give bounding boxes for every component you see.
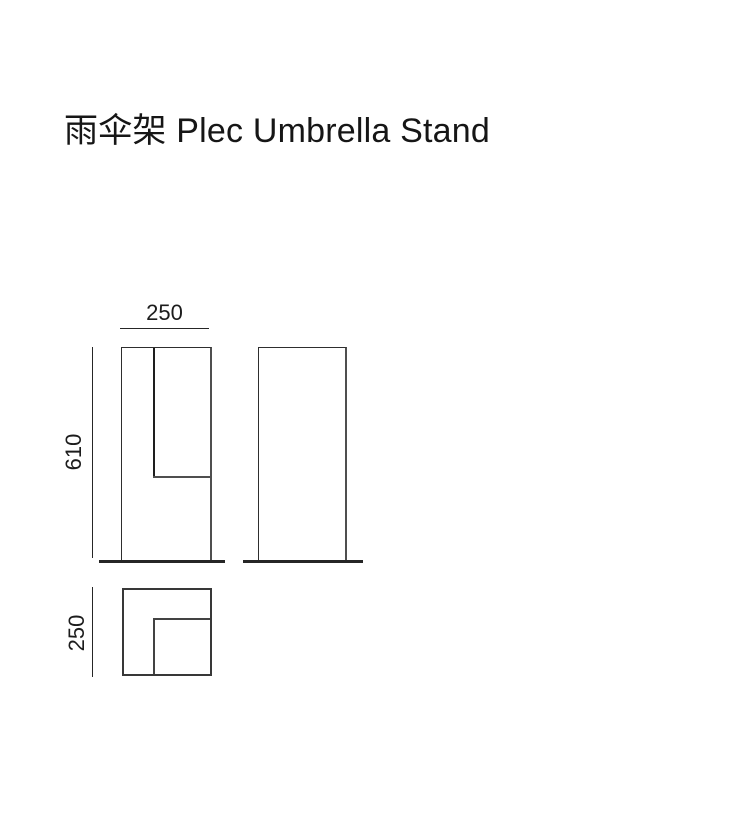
top-view-inner-corner <box>153 618 210 674</box>
width-dimension-line <box>120 328 209 329</box>
side-view-outline <box>258 347 347 561</box>
front-view-outline <box>121 347 212 561</box>
front-view-ground-line <box>99 560 225 563</box>
side-view-ground-line <box>243 560 363 563</box>
depth-dimension-label: 250 <box>65 598 89 668</box>
height-dimension-label: 610 <box>62 417 86 487</box>
front-view-inner-horizontal-line <box>153 476 210 478</box>
height-dimension-line <box>92 347 93 558</box>
top-view-outline <box>122 588 212 676</box>
depth-dimension-line <box>92 587 93 677</box>
page-title: 雨伞架 Plec Umbrella Stand <box>64 114 490 148</box>
width-dimension-label: 250 <box>120 301 209 325</box>
product-dimension-page: 雨伞架 Plec Umbrella Stand 250 610 250 <box>0 0 750 826</box>
front-view-inner-vertical-line <box>153 348 155 477</box>
